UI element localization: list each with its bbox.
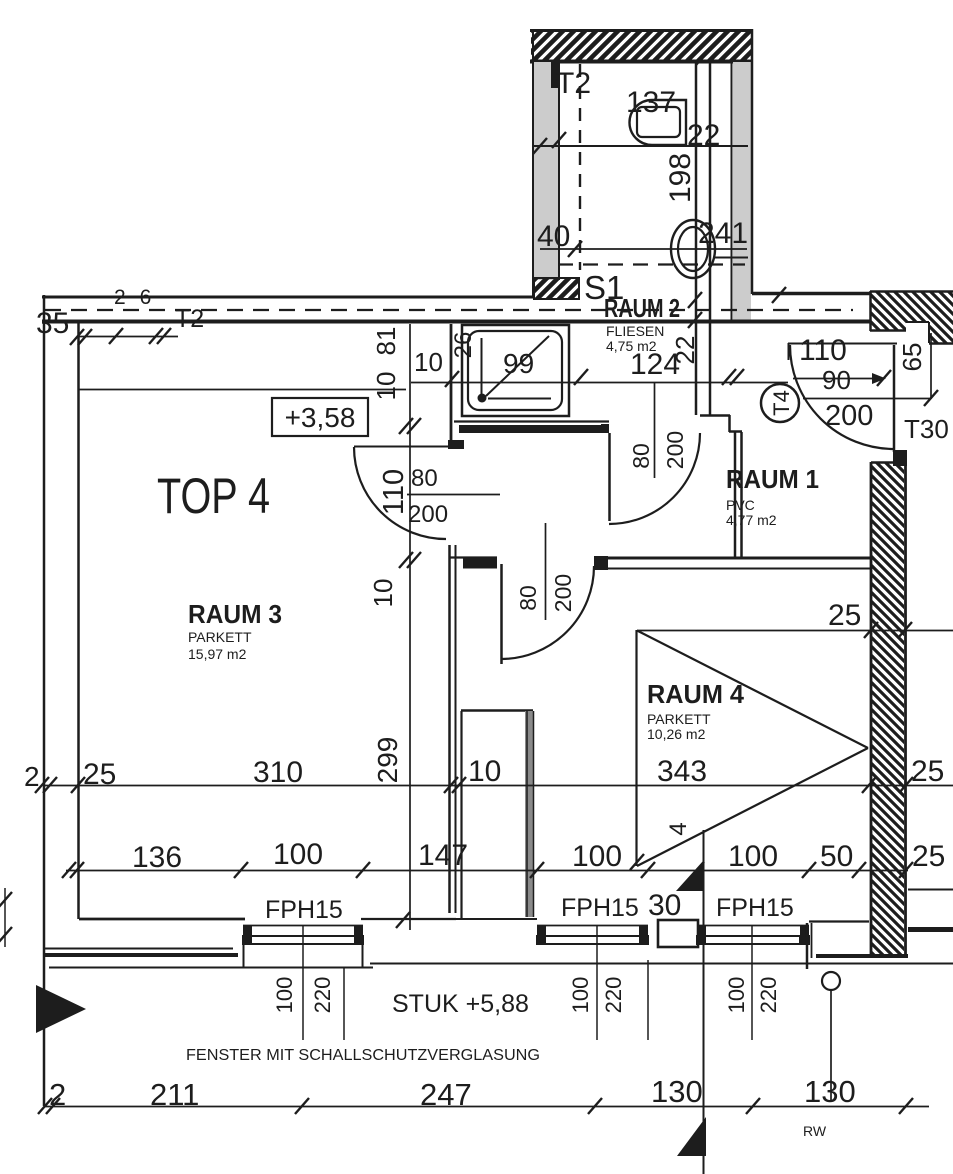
svg-text:99: 99: [503, 348, 534, 379]
svg-text:26: 26: [114, 286, 165, 309]
svg-text:100: 100: [728, 840, 778, 873]
svg-text:100: 100: [272, 977, 297, 1014]
svg-text:10,26 m2: 10,26 m2: [647, 726, 706, 742]
svg-text:RAUM 3: RAUM 3: [188, 599, 282, 629]
svg-text:T2: T2: [556, 67, 591, 100]
svg-text:25: 25: [83, 758, 116, 791]
svg-text:4: 4: [665, 822, 692, 835]
svg-text:2: 2: [49, 1077, 66, 1112]
svg-text:147: 147: [418, 839, 468, 872]
svg-text:35: 35: [36, 307, 69, 340]
svg-text:100: 100: [572, 840, 622, 873]
svg-text:310: 310: [253, 756, 303, 789]
svg-text:100: 100: [273, 838, 323, 871]
svg-text:100: 100: [724, 977, 749, 1014]
svg-text:80: 80: [411, 465, 438, 492]
svg-text:26: 26: [450, 332, 477, 359]
svg-text:30: 30: [648, 889, 681, 922]
svg-text:200: 200: [825, 400, 873, 432]
svg-text:FLIESEN: FLIESEN: [606, 323, 664, 339]
svg-text:10: 10: [368, 579, 398, 608]
svg-text:25: 25: [828, 599, 861, 632]
svg-text:15,97 m2: 15,97 m2: [188, 646, 247, 662]
svg-text:STUK +5,88: STUK +5,88: [392, 990, 529, 1018]
svg-text:80: 80: [628, 443, 654, 469]
svg-text:10: 10: [468, 755, 501, 788]
svg-text:PARKETT: PARKETT: [647, 711, 711, 727]
svg-text:211: 211: [150, 1077, 199, 1112]
svg-text:100: 100: [568, 977, 593, 1014]
svg-text:RAUM 2: RAUM 2: [604, 293, 680, 323]
svg-text:220: 220: [756, 977, 781, 1014]
svg-text:80: 80: [515, 585, 541, 611]
svg-text:22: 22: [687, 119, 720, 152]
svg-text:40: 40: [537, 220, 570, 253]
svg-text:T4: T4: [769, 390, 794, 416]
svg-text:RAUM 1: RAUM 1: [726, 464, 819, 494]
svg-text:PARKETT: PARKETT: [188, 629, 252, 645]
svg-text:TOP 4: TOP 4: [157, 468, 270, 524]
svg-text:200: 200: [550, 574, 576, 612]
svg-text:198: 198: [664, 153, 697, 203]
svg-text:+3,58: +3,58: [285, 402, 356, 433]
svg-text:343: 343: [657, 755, 707, 788]
svg-text:220: 220: [601, 977, 626, 1014]
svg-text:10: 10: [414, 347, 443, 377]
svg-text:2: 2: [24, 761, 40, 792]
svg-text:4,77 m2: 4,77 m2: [726, 512, 777, 528]
svg-text:PVC: PVC: [726, 497, 755, 513]
svg-text:110: 110: [378, 469, 410, 515]
svg-text:130: 130: [651, 1074, 703, 1109]
svg-text:FPH15: FPH15: [265, 896, 343, 924]
svg-text:241: 241: [698, 217, 748, 250]
svg-text:220: 220: [310, 977, 335, 1014]
svg-text:25: 25: [912, 840, 945, 873]
svg-text:25: 25: [911, 755, 944, 788]
svg-text:137: 137: [626, 86, 676, 119]
svg-text:136: 136: [132, 841, 182, 874]
svg-text:110: 110: [799, 334, 847, 367]
svg-text:FENSTER MIT SCHALLSCHUTZVERGLA: FENSTER MIT SCHALLSCHUTZVERGLASUNG: [186, 1047, 540, 1064]
svg-text:81: 81: [371, 327, 401, 356]
svg-text:RAUM 4: RAUM 4: [647, 679, 745, 709]
svg-text:RW: RW: [803, 1123, 827, 1139]
svg-text:299: 299: [372, 737, 403, 784]
svg-text:22: 22: [670, 336, 700, 365]
svg-text:200: 200: [408, 501, 448, 528]
svg-text:247: 247: [420, 1077, 472, 1112]
svg-text:90: 90: [822, 365, 851, 395]
svg-text:FPH15: FPH15: [716, 894, 794, 922]
svg-text:10: 10: [371, 372, 401, 401]
svg-text:FPH15: FPH15: [561, 894, 639, 922]
svg-text:T30: T30: [904, 414, 949, 444]
svg-text:65: 65: [897, 343, 927, 372]
svg-text:200: 200: [662, 431, 688, 469]
svg-text:T2: T2: [175, 305, 204, 333]
svg-text:50: 50: [820, 840, 853, 873]
svg-text:130: 130: [804, 1074, 856, 1109]
